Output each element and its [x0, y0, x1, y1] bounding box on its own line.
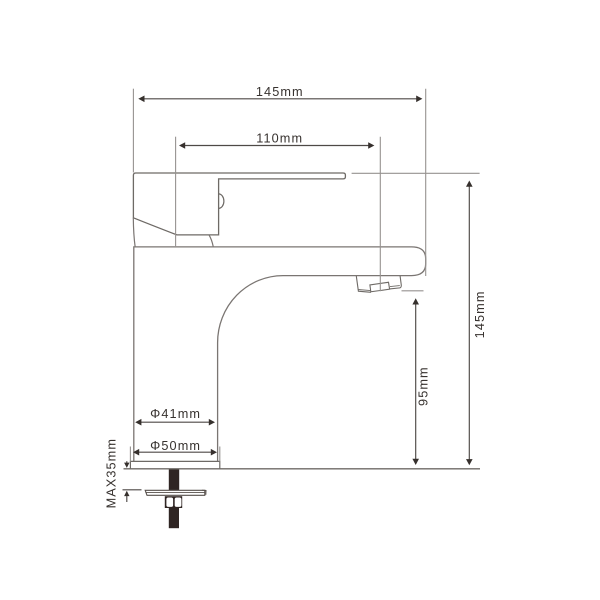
svg-text:110mm: 110mm: [256, 132, 303, 146]
svg-text:Φ50mm: Φ50mm: [150, 439, 201, 453]
svg-text:95mm: 95mm: [417, 366, 431, 406]
svg-text:Φ41mm: Φ41mm: [150, 407, 201, 421]
svg-text:145mm: 145mm: [473, 290, 487, 338]
svg-text:145mm: 145mm: [256, 85, 304, 99]
svg-text:MAX35mm: MAX35mm: [105, 438, 119, 508]
